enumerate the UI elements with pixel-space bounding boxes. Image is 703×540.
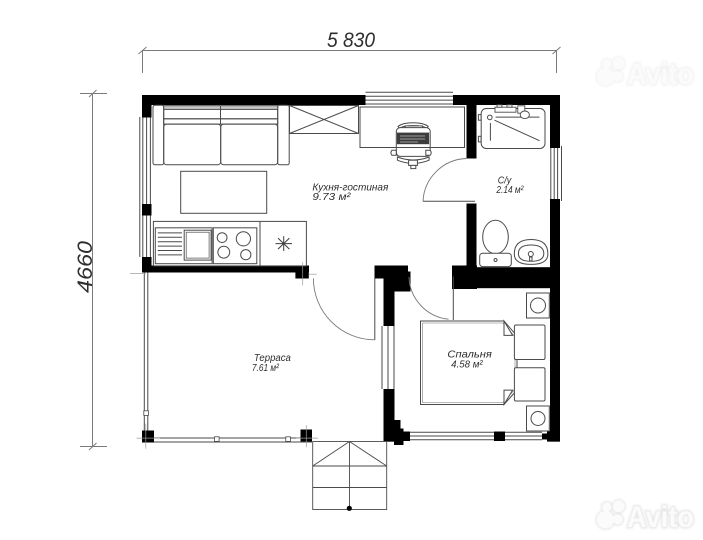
svg-text:Avito: Avito — [627, 58, 694, 91]
svg-text:7.61 м²: 7.61 м² — [252, 362, 279, 374]
svg-text:2.14 м²: 2.14 м² — [496, 184, 524, 196]
svg-text:9.73 м²: 9.73 м² — [312, 191, 351, 203]
svg-text:5 830: 5 830 — [327, 28, 375, 52]
svg-text:Avito: Avito — [627, 501, 694, 534]
svg-text:4660: 4660 — [73, 241, 97, 293]
svg-text:4.58 м²: 4.58 м² — [451, 358, 483, 370]
